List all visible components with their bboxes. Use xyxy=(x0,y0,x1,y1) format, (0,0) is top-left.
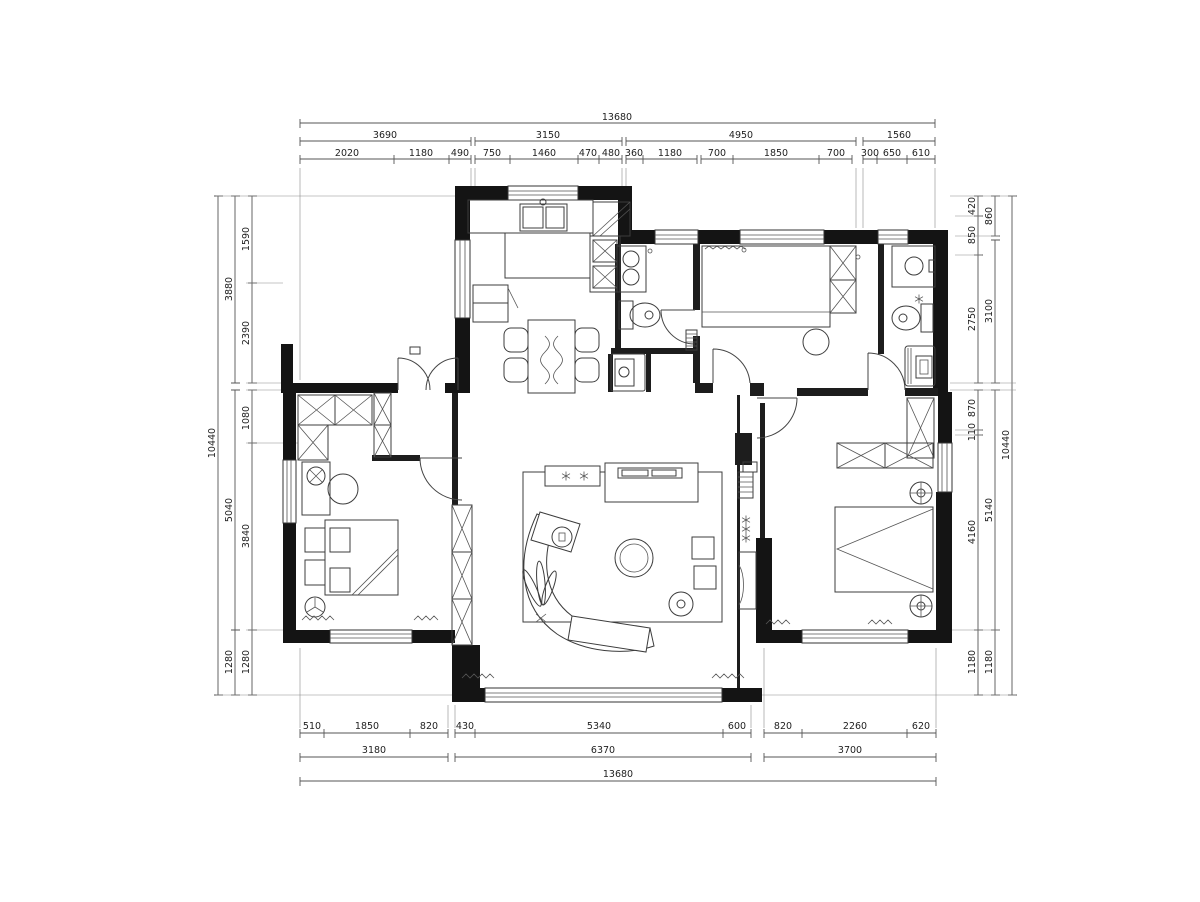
dim-label: 1280 xyxy=(224,650,235,674)
dim-label: 610 xyxy=(912,148,930,159)
shoe-cabinet xyxy=(452,505,472,645)
dim-label: 750 xyxy=(483,148,501,159)
dim-label: 3100 xyxy=(984,299,995,323)
dim-label: 1080 xyxy=(241,406,252,430)
ceiling-fan-icon xyxy=(910,482,932,504)
hatch-mark xyxy=(414,616,438,620)
dimension-chain-left: 1590 2390 1080 3840 1280 3880 5040 1280 … xyxy=(207,196,257,695)
dim-label: 700 xyxy=(708,148,726,159)
dim-label: 110 xyxy=(967,423,978,441)
dining-chair xyxy=(575,358,599,382)
dim-label: 1180 xyxy=(658,148,682,159)
dim-label: 2020 xyxy=(335,148,359,159)
dim-label: 820 xyxy=(420,721,438,732)
stool xyxy=(328,474,358,504)
flower-icon xyxy=(742,525,750,534)
curved-sofa xyxy=(524,512,654,652)
radiator xyxy=(738,462,757,498)
dim-label: 480 xyxy=(602,148,620,159)
dim-label: 1850 xyxy=(355,721,379,732)
fridge xyxy=(473,285,518,322)
tv-console xyxy=(605,463,698,502)
dim-label: 3840 xyxy=(241,524,252,548)
living-room xyxy=(452,462,757,678)
dim-label: 1280 xyxy=(241,650,252,674)
dim-label: 1460 xyxy=(532,148,556,159)
chair xyxy=(803,329,829,355)
window xyxy=(655,230,698,244)
dim-label: 2750 xyxy=(967,307,978,331)
window xyxy=(330,630,412,643)
dimension-chain-bottom: 510 1850 820 430 5340 600 820 2260 620 3… xyxy=(300,721,936,786)
hall-cabinet xyxy=(739,552,756,609)
dim-label: 10440 xyxy=(207,428,218,458)
dining-table xyxy=(528,320,575,393)
dim-label: 470 xyxy=(579,148,597,159)
dim-label: 3690 xyxy=(373,130,397,141)
dim-label: 860 xyxy=(984,207,995,225)
dimension-chain-top: 13680 3690 3150 4950 1560 2020 1180 490 … xyxy=(300,112,935,164)
dim-label: 10440 xyxy=(1001,430,1012,460)
window xyxy=(283,460,296,523)
kitchen xyxy=(468,199,630,322)
nightstand xyxy=(305,560,325,585)
dim-label: 1180 xyxy=(984,650,995,674)
bed xyxy=(305,520,398,595)
dim-label: 1560 xyxy=(887,130,911,141)
master-bedroom xyxy=(766,398,934,624)
dim-label: 3700 xyxy=(838,745,862,756)
dim-label: 700 xyxy=(827,148,845,159)
dim-label: 510 xyxy=(303,721,321,732)
bedroom1 xyxy=(298,393,438,620)
dimension-chain-right: 420 850 2750 870 110 4160 1180 860 3100 … xyxy=(967,196,1017,695)
dim-label: 850 xyxy=(967,226,978,244)
dim-label: 3880 xyxy=(224,277,235,301)
nightstand xyxy=(305,528,325,552)
table-centerpiece xyxy=(541,336,563,384)
bath2-door xyxy=(868,353,905,390)
side-table xyxy=(694,566,716,589)
dim-label: 5140 xyxy=(984,498,995,522)
basin xyxy=(892,246,935,287)
wardrobe xyxy=(837,398,934,468)
window xyxy=(740,230,824,244)
dim-label: 820 xyxy=(774,721,792,732)
dim-label: 5040 xyxy=(224,498,235,522)
dim-label: 4950 xyxy=(729,130,753,141)
dining-chair xyxy=(504,358,528,382)
washing-machine xyxy=(905,346,935,386)
kitchen-island xyxy=(505,233,590,278)
double-basin xyxy=(617,246,652,292)
window xyxy=(878,230,908,244)
dim-label: 870 xyxy=(967,399,978,417)
dim-label: 2390 xyxy=(241,321,252,345)
dim-label: 13680 xyxy=(602,112,632,123)
dim-label: 650 xyxy=(883,148,901,159)
dim-label: 360 xyxy=(625,148,643,159)
dim-label: 2260 xyxy=(843,721,867,732)
flower-icon xyxy=(742,534,750,543)
bath1-door xyxy=(661,310,695,344)
dim-label: 4160 xyxy=(967,520,978,544)
window xyxy=(485,688,722,702)
pillow xyxy=(330,568,350,592)
hatch-mark xyxy=(868,620,892,624)
flower-icon xyxy=(742,516,750,525)
dim-label: 13680 xyxy=(603,769,633,780)
bathroom2 xyxy=(686,246,935,386)
side-table xyxy=(692,537,714,559)
toilet xyxy=(892,304,933,332)
pillow xyxy=(330,528,350,552)
bed xyxy=(835,507,933,592)
window xyxy=(508,186,578,200)
dim-label: 1590 xyxy=(241,227,252,251)
dim-label: 300 xyxy=(861,148,879,159)
dim-label: 1180 xyxy=(967,650,978,674)
dim-label: 490 xyxy=(451,148,469,159)
wardrobe xyxy=(830,246,856,313)
kitchen-sink xyxy=(520,199,567,231)
dim-label: 420 xyxy=(967,197,978,215)
dining-chair xyxy=(504,328,528,352)
dim-label: 5340 xyxy=(587,721,611,732)
floor-plan-page: 13680 3690 3150 4950 1560 2020 1180 490 … xyxy=(0,0,1200,902)
window xyxy=(455,240,470,318)
bedroom2 xyxy=(702,246,860,355)
floor-lamp-icon xyxy=(669,592,693,616)
window xyxy=(938,443,952,492)
coffee-table xyxy=(615,539,653,577)
dining-chair xyxy=(575,328,599,352)
drain-icon xyxy=(915,295,923,304)
plant xyxy=(520,561,559,622)
tv-cabinet xyxy=(545,466,600,486)
dim-label: 3180 xyxy=(362,745,386,756)
bed xyxy=(702,246,830,327)
dim-label: 3150 xyxy=(536,130,560,141)
bedroom2-door xyxy=(713,349,750,383)
washing-machine xyxy=(611,354,645,391)
wardrobe xyxy=(298,393,391,460)
dim-label: 430 xyxy=(456,721,474,732)
ceiling-fan-icon xyxy=(910,595,932,617)
dim-label: 1180 xyxy=(409,148,433,159)
dim-label: 1850 xyxy=(764,148,788,159)
ceiling-fan-icon xyxy=(305,597,325,617)
toilet xyxy=(619,301,660,329)
wall-light-icon xyxy=(856,255,860,259)
cushion xyxy=(552,527,572,547)
dim-label: 620 xyxy=(912,721,930,732)
floor-plan-drawing: 13680 3690 3150 4950 1560 2020 1180 490 … xyxy=(0,0,1200,902)
dim-label: 600 xyxy=(728,721,746,732)
window xyxy=(802,630,908,643)
dining-area xyxy=(504,320,599,393)
dim-label: 6370 xyxy=(591,745,615,756)
dresser xyxy=(302,462,330,515)
